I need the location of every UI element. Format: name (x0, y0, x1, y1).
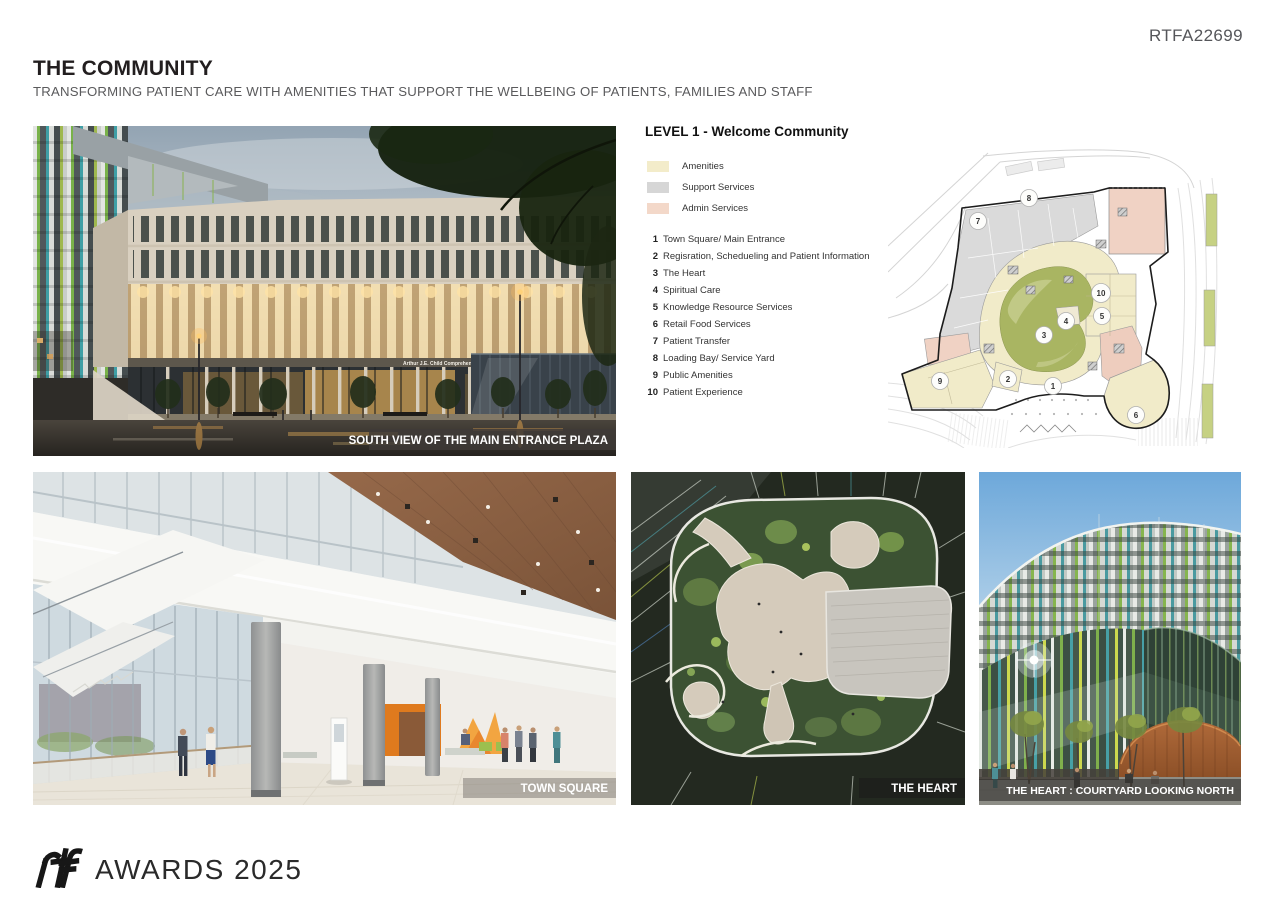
green-strips (1202, 194, 1217, 438)
legend-label: Support Services (682, 182, 754, 193)
plaza-columns (1011, 399, 1097, 415)
svg-text:2: 2 (1006, 375, 1011, 384)
svg-text:7: 7 (976, 217, 981, 226)
canopy-roof (826, 586, 951, 698)
plan-key-item: 7Patient Transfer (645, 336, 870, 353)
legend-label: Admin Services (682, 203, 748, 214)
plan-legend: Amenities Support Services Admin Service… (647, 156, 754, 219)
svg-text:5: 5 (1100, 312, 1105, 321)
plan-key-item: 5Knowledge Resource Services (645, 302, 870, 319)
photo-caption: SOUTH VIEW OF THE MAIN ENTRANCE PLAZA (349, 429, 616, 450)
plan-key-item: 3The Heart (645, 268, 870, 285)
heart-aerial-photo: THE HEART (631, 472, 965, 805)
rtf-logo-icon (33, 846, 83, 893)
admin-swatch (647, 203, 669, 214)
svg-text:9: 9 (938, 377, 943, 386)
awards-label: AWARDS 2025 (95, 854, 302, 886)
footer: AWARDS 2025 (33, 846, 302, 893)
town-square-photo: TOWN SQUARE (33, 472, 616, 805)
legend-item-amenities: Amenities (647, 156, 754, 177)
svg-text:THE HEART : COURTYARD LOOKING: THE HEART : COURTYARD LOOKING NORTH (1006, 785, 1234, 797)
page-title: THE COMMUNITY (33, 57, 213, 81)
svg-text:4: 4 (1064, 317, 1069, 326)
main-entrance-photo: Arthur J.E. Child Comprehensive Cancer C… (33, 126, 616, 456)
award-board: RTFA22699 THE COMMUNITY TRANSFORMING PAT… (0, 0, 1273, 900)
admin-zone (1109, 188, 1165, 254)
legend-item-support: Support Services (647, 177, 754, 198)
svg-text:6: 6 (1134, 411, 1139, 420)
svg-text:10: 10 (1097, 289, 1106, 298)
plan-key-item: 8Loading Bay/ Service Yard (645, 353, 870, 370)
legend-item-admin: Admin Services (647, 198, 754, 219)
heart-courtyard-photo: THE HEART : COURTYARD LOOKING NORTH (979, 472, 1241, 805)
svg-text:TOWN SQUARE: TOWN SQUARE (521, 783, 609, 795)
plan-key-item: 2Regisration, Schedueling and Patient In… (645, 251, 870, 268)
legend-label: Amenities (682, 161, 724, 172)
amenities-swatch (647, 161, 669, 172)
submission-id: RTFA22699 (1149, 26, 1243, 46)
svg-text:8: 8 (1027, 194, 1032, 203)
plan-key-item: 10Patient Experience (645, 387, 870, 404)
plan-key-item: 9Public Amenities (645, 370, 870, 387)
photo-caption: TOWN SQUARE (463, 778, 616, 798)
svg-text:THE HEART: THE HEART (891, 783, 957, 795)
support-swatch (647, 182, 669, 193)
photo-caption: THE HEART (859, 778, 965, 798)
svg-text:1: 1 (1051, 382, 1056, 391)
svg-text:3: 3 (1042, 331, 1047, 340)
svg-text:SOUTH VIEW OF THE MAIN ENTRANC: SOUTH VIEW OF THE MAIN ENTRANCE PLAZA (349, 435, 608, 447)
plan-key-item: 4Spiritual Care (645, 285, 870, 302)
page-subtitle: TRANSFORMING PATIENT CARE WITH AMENITIES… (33, 84, 813, 99)
level1-floor-plan: 1 2 3 4 5 6 7 8 9 10 (888, 148, 1223, 448)
plan-key-item: 1Town Square/ Main Entrance (645, 234, 870, 251)
plan-heading: LEVEL 1 - Welcome Community (645, 124, 849, 139)
plan-key-list: 1Town Square/ Main Entrance 2Regisration… (645, 234, 870, 404)
photo-caption: THE HEART : COURTYARD LOOKING NORTH (979, 779, 1241, 801)
plan-key-item: 6Retail Food Services (645, 319, 870, 336)
